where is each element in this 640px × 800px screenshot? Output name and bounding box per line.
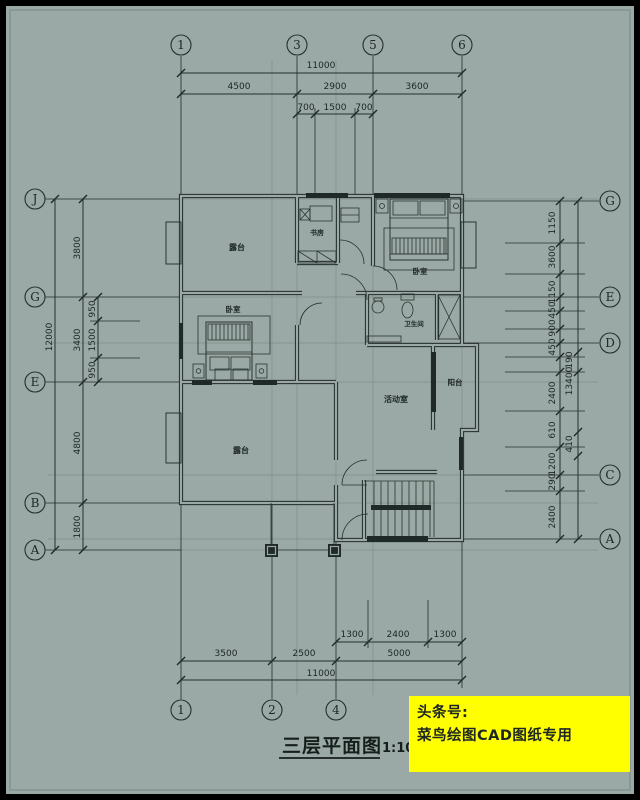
room-label-bathroom: 卫生间 — [404, 319, 424, 328]
dim-bottom-1300: 1300 — [434, 630, 457, 640]
dim-right-190: 190 — [565, 351, 575, 368]
dim-right-610: 610 — [548, 421, 558, 438]
dim-left-1800: 1800 — [73, 515, 83, 538]
axis-right-E-label: E — [606, 290, 615, 304]
axis-right-G-label: G — [605, 194, 615, 208]
window-stair — [459, 437, 463, 470]
watermark-line2: 菜鸟绘图CAD图纸专用 — [416, 726, 572, 744]
dim-left-950: 950 — [88, 300, 98, 317]
room-label-balcony: 阳台 — [448, 377, 463, 387]
dim-right-290: 290 — [548, 473, 558, 490]
dim-bottom-5000: 5000 — [388, 649, 411, 659]
room-label-activity-room: 活动室 — [384, 394, 408, 404]
stair-bottom-tread — [367, 536, 428, 542]
dim-left-1500: 1500 — [88, 328, 98, 351]
dim-top-4500: 4500 — [228, 82, 251, 92]
axis-left-A-label: A — [30, 543, 40, 557]
axis-bottom-4-label: 4 — [332, 703, 340, 717]
axis-left-B-label: B — [31, 496, 40, 510]
axis-right-C-label: C — [605, 468, 614, 482]
axis-left-E-label: E — [31, 375, 40, 389]
dim-top-1500: 1500 — [324, 103, 347, 113]
dim-top-2900: 2900 — [324, 82, 347, 92]
axis-right-A-label: A — [605, 532, 615, 546]
dim-bottom-2500: 2500 — [293, 649, 316, 659]
column-1 — [265, 544, 278, 557]
dim-right-2400: 2400 — [548, 505, 558, 528]
dim-left-4800: 4800 — [73, 431, 83, 454]
dim-top-11000: 11000 — [307, 61, 336, 71]
axis-right-D-label: D — [605, 336, 615, 350]
window-balcony — [431, 352, 436, 412]
dim-top-700: 700 — [297, 103, 314, 113]
dim-right-410: 410 — [565, 435, 575, 452]
window-bedroom-top — [374, 193, 450, 198]
room-label-bedroom-mid: 卧室 — [226, 304, 241, 314]
dim-left-12000: 12000 — [45, 322, 55, 351]
column-2 — [328, 544, 341, 557]
dim-top-3600: 3600 — [406, 82, 429, 92]
dim-bottom-11000: 11000 — [307, 669, 336, 679]
room-label-terrace-bottom: 露台 — [233, 445, 249, 455]
dim-right-1150: 1150 — [548, 211, 558, 234]
window-study — [306, 193, 348, 198]
room-label-terrace-top: 露台 — [229, 242, 245, 252]
dim-right-2400: 2400 — [548, 381, 558, 404]
dim-bottom-2400: 2400 — [387, 630, 410, 640]
dim-left-950: 950 — [88, 361, 98, 378]
dim-left-3800: 3800 — [73, 236, 83, 259]
watermark: 头条号: 菜鸟绘图CAD图纸专用 — [409, 696, 630, 772]
watermark-line1: 头条号: — [417, 703, 468, 721]
stair-handrail — [371, 505, 431, 510]
dim-right-3600: 3600 — [548, 245, 558, 268]
axis-top-3-label: 3 — [293, 38, 301, 52]
axis-top-5-label: 5 — [369, 38, 377, 52]
room-label-bedroom-top: 卧室 — [413, 266, 428, 276]
axis-top-1-label: 1 — [177, 38, 185, 52]
window-bedroom-mid-left — [179, 323, 183, 359]
axis-bottom-1-label: 1 — [177, 703, 185, 717]
room-label-study: 书房 — [310, 228, 324, 237]
axis-bottom-2-label: 2 — [268, 703, 276, 717]
screenshot-stage: 1356124JGEBAGEDCA 1100045002900360070015… — [0, 0, 640, 800]
axis-left-J-label: J — [31, 192, 38, 206]
dim-right-13400: 13400 — [565, 366, 575, 395]
dim-right-1200: 1200 — [548, 452, 558, 475]
dim-right-900: 900 — [548, 319, 558, 336]
dim-top-700: 700 — [355, 103, 372, 113]
dim-bottom-3500: 3500 — [215, 649, 238, 659]
window-bedroom-mid-b — [253, 380, 277, 385]
dim-right-1150: 1150 — [548, 280, 558, 303]
axis-top-6-label: 6 — [458, 38, 466, 52]
dim-left-3400: 3400 — [73, 328, 83, 351]
dim-right-450: 450 — [548, 301, 558, 318]
dim-bottom-1300: 1300 — [341, 630, 364, 640]
dim-right-450: 450 — [548, 338, 558, 355]
window-bedroom-mid-a — [192, 380, 212, 385]
drawing-title: 三层平面图 — [282, 735, 382, 757]
floor-plan-drawing: 1356124JGEBAGEDCA 1100045002900360070015… — [0, 0, 640, 800]
axis-left-G-label: G — [30, 290, 40, 304]
